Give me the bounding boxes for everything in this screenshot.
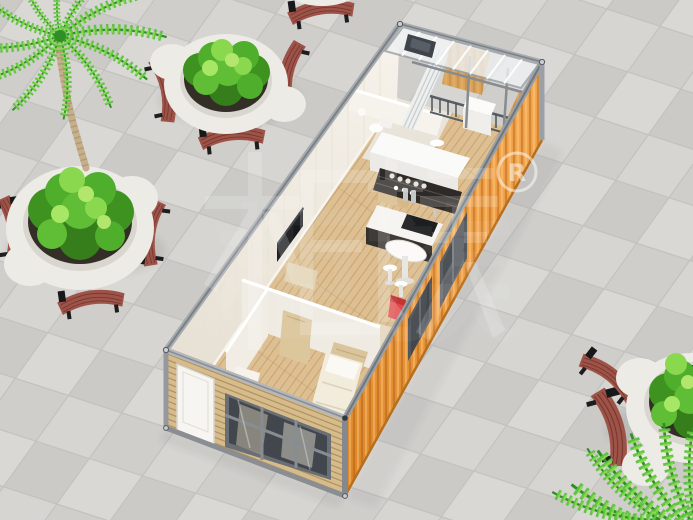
- patio-table: [430, 140, 444, 147]
- washbasin: [358, 108, 366, 116]
- render-scene: 柜族 R: [0, 0, 693, 520]
- scene-canvas: 柜族 R: [0, 0, 693, 520]
- registered-letter: R: [508, 159, 526, 187]
